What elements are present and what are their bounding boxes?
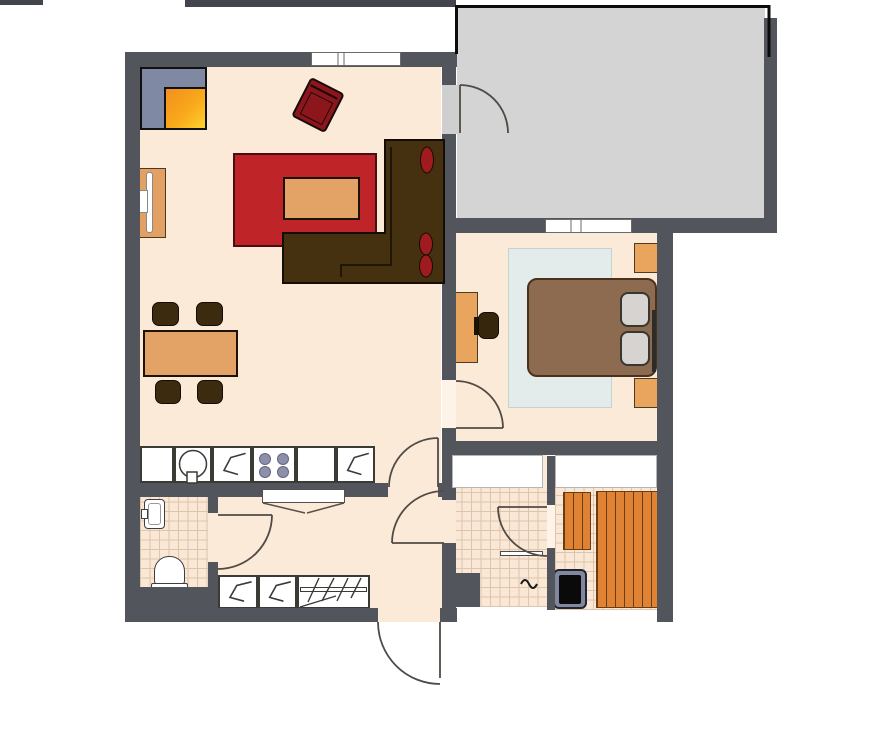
- tv-side-unit: [139, 190, 148, 213]
- door-opening-sauna: [547, 505, 555, 548]
- kitchen-cabinet-2: [336, 446, 375, 483]
- wall-bathroom-block: [452, 573, 480, 607]
- top-edge-wall-fragment: [185, 0, 456, 7]
- kitchen-counter-unit-1: [140, 446, 174, 483]
- sauna-bench: [555, 455, 657, 488]
- door-opening-bathroom: [442, 500, 456, 543]
- dining-chair-2: [196, 302, 223, 326]
- door-opening-wc: [208, 513, 218, 562]
- bed-pillow-2: [620, 331, 650, 366]
- hall-cabinet-1: [218, 575, 258, 609]
- window-living-room: [311, 52, 401, 66]
- washing-machine-drum: [559, 575, 581, 604]
- door-opening-entrance: [378, 608, 440, 622]
- wall-terrace-right: [764, 18, 777, 233]
- coat-rack-box: [297, 575, 370, 609]
- door-opening-living-hall: [388, 483, 438, 497]
- fireplace-firebox: [164, 87, 207, 130]
- kitchen-stove: [252, 446, 296, 483]
- kitchen-sink-unit: [174, 446, 212, 483]
- kitchen-counter-unit-2: [296, 446, 336, 483]
- bed-pillow-1: [620, 292, 650, 327]
- desk-chair-seat: [478, 312, 499, 339]
- wall-left-outer: [125, 52, 140, 622]
- dining-table: [143, 330, 238, 377]
- wc-washbasin-tap: [141, 509, 148, 519]
- coffee-table: [283, 177, 360, 220]
- door-entrance: [378, 622, 440, 684]
- top-edge-wall-fragment-left: [0, 0, 43, 5]
- terrace-floor: [457, 7, 765, 220]
- sauna-duckboard-small: [563, 492, 591, 550]
- wall-top-outer: [125, 52, 457, 67]
- toilet-bowl: [154, 556, 185, 585]
- wc-washbasin-inner: [148, 503, 161, 525]
- wall-right-outer: [657, 233, 673, 622]
- dining-chair-4: [197, 380, 223, 404]
- wall-bedroom-bottom: [442, 441, 673, 455]
- dining-chair-3: [155, 380, 181, 404]
- dining-chair-1: [152, 302, 179, 326]
- door-opening-terrace: [442, 85, 459, 134]
- towel-shelf: [500, 551, 543, 556]
- sauna-duckboard-large: [596, 491, 659, 608]
- kitchen-cabinet-1: [212, 446, 252, 483]
- window-bedroom-terrace: [545, 219, 632, 233]
- bathroom-vanity: [452, 455, 543, 488]
- floorplan-canvas: [0, 0, 878, 733]
- door-opening-bedroom: [442, 380, 456, 428]
- hall-cabinet-2: [258, 575, 297, 609]
- coat-rack-rail: [300, 587, 367, 592]
- bed-headboard-line: [652, 310, 656, 372]
- hall-wardrobe-shelf: [262, 489, 345, 503]
